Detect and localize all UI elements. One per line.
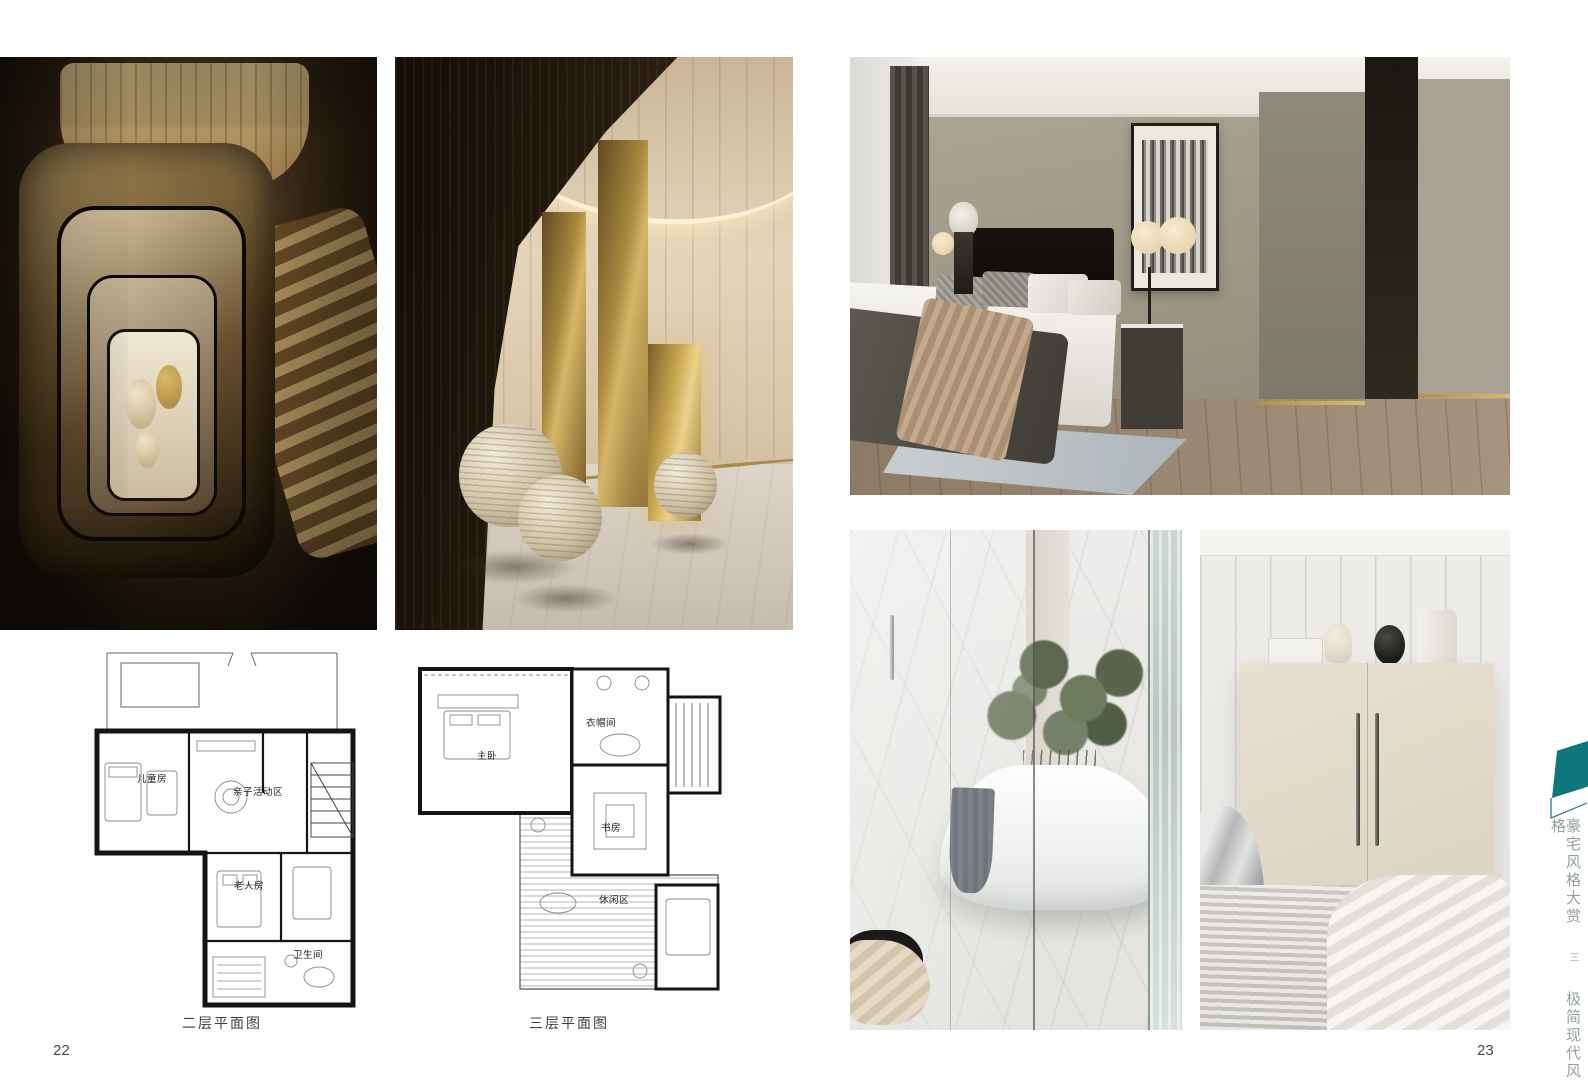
white-vases — [1417, 610, 1457, 663]
room-label-activity: 亲子活动区 — [233, 784, 283, 798]
cabinet-handle — [1375, 713, 1379, 846]
nightstand — [1121, 324, 1184, 429]
white-throw-blanket — [1327, 875, 1510, 1030]
right-wall — [1418, 79, 1510, 408]
floorplan-second-floor: 儿童房 亲子活动区 老人房 卫生间 — [85, 645, 365, 1013]
room-label-bath: 卫生间 — [293, 947, 323, 961]
page-number-left: 22 — [53, 1042, 70, 1059]
chapter-vertical-title: 豪宅风格大赏 三 极简现代风格 — [1550, 818, 1580, 1089]
chapter-tab — [1552, 741, 1588, 798]
room-label-leisure: 休闲区 — [599, 892, 629, 906]
room-label-master: 主卧 — [477, 748, 497, 762]
floorplan-third-floor: 主卧 衣帽间 书房 休闲区 — [408, 653, 730, 1001]
brass-base-trim — [1259, 401, 1365, 405]
right-glass-panel — [1148, 530, 1182, 1030]
cabinet-handle — [1356, 713, 1360, 846]
ribbed-sphere-medium — [518, 475, 602, 561]
caption-third-floor-plan: 三层平面图 — [529, 1013, 609, 1033]
vignette — [0, 57, 377, 630]
white-box-stack — [1268, 638, 1323, 665]
glass-joint — [950, 530, 951, 1030]
sphere-shadow — [514, 584, 617, 613]
dark-doorway — [1365, 57, 1418, 399]
caption-second-floor-plan: 二层平面图 — [182, 1013, 262, 1033]
white-pillow — [1068, 280, 1121, 315]
wall-column — [1259, 92, 1365, 407]
room-label-elder: 老人房 — [234, 878, 264, 892]
cream-cabinet — [1240, 663, 1494, 893]
framed-artwork-large — [1131, 123, 1220, 291]
book-spread: 儿童房 亲子活动区 老人房 卫生间 — [0, 0, 1588, 1089]
brass-column — [598, 140, 648, 507]
ceiling-strip — [1200, 530, 1510, 556]
lamp-stem — [1148, 267, 1151, 324]
page-number-right: 23 — [1477, 1042, 1494, 1059]
bedroom-photo — [850, 57, 1510, 495]
wardrobe-photo — [1200, 530, 1510, 1030]
brass-columns-photo — [395, 57, 793, 630]
bathroom-photo — [850, 530, 1182, 1030]
stairwell-photo — [0, 57, 377, 630]
room-label-study: 书房 — [601, 820, 621, 834]
lamp-globe-left — [932, 232, 954, 255]
volume-divider: 三 — [1567, 952, 1578, 965]
sculpture-plinth — [954, 232, 972, 293]
lamp-globe — [1159, 217, 1196, 254]
shower-door-handle — [890, 615, 894, 680]
cabinet-door-seam — [1367, 663, 1368, 893]
room-label-cloak: 衣帽间 — [586, 715, 616, 729]
cream-jar — [1324, 623, 1352, 663]
ribbed-sphere-small — [654, 452, 718, 518]
room-label-kids: 儿童房 — [137, 771, 167, 785]
black-vase — [1374, 625, 1405, 665]
floorplan-third-drawing — [408, 653, 730, 1001]
brass-base-trim — [1418, 394, 1510, 398]
series-title: 豪宅风格大赏 — [1564, 818, 1581, 926]
